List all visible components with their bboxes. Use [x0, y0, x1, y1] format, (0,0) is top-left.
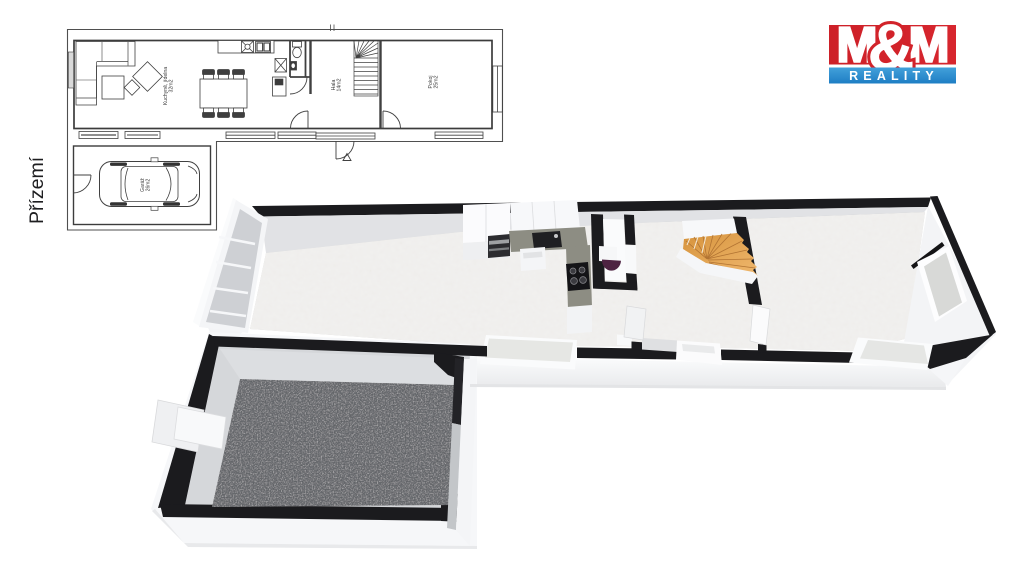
svg-text:Hala14m2: Hala14m2 [331, 78, 343, 91]
svg-text:Přízemí: Přízemí [26, 156, 48, 224]
svg-text:REALITY: REALITY [849, 69, 939, 83]
svg-text:Garáž26m2: Garáž26m2 [140, 178, 152, 192]
svg-text:Pokoj25m2: Pokoj25m2 [428, 75, 440, 88]
svg-text:M: M [909, 19, 950, 73]
